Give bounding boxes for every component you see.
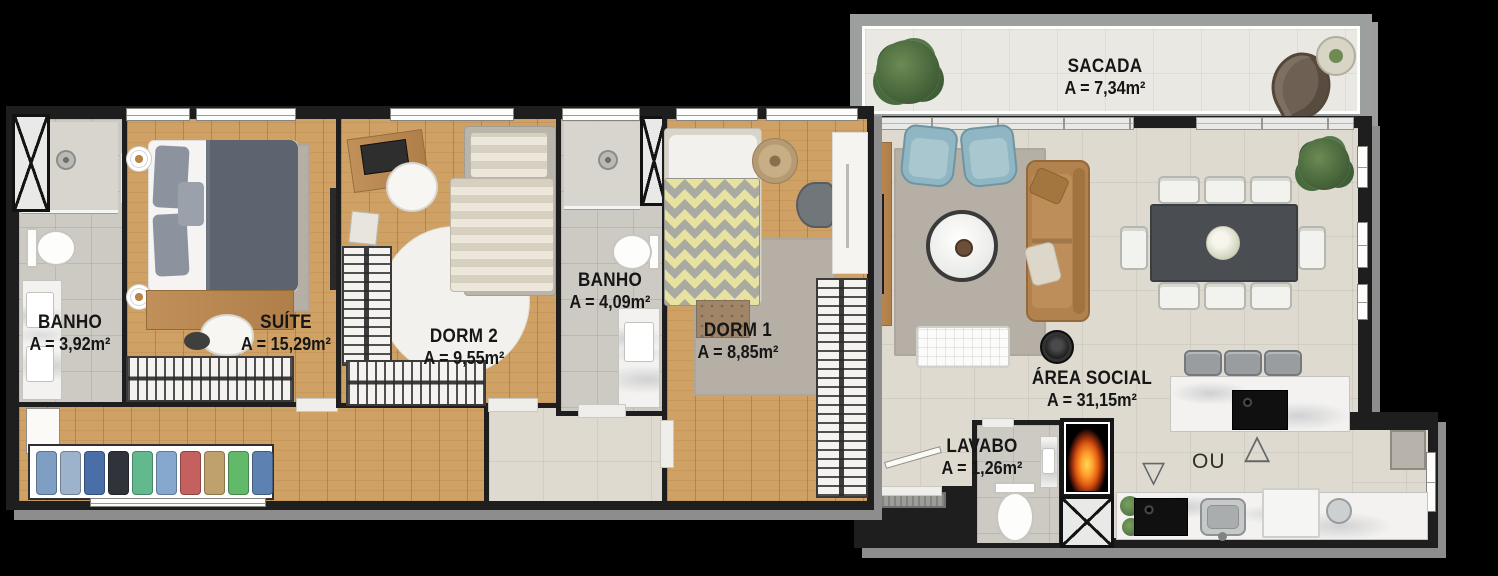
table-centerpiece bbox=[1206, 226, 1240, 260]
room-name: ÁREA SOCIAL bbox=[1020, 368, 1164, 390]
closet-shelf bbox=[28, 444, 274, 500]
folded-clothes bbox=[180, 451, 201, 495]
facade-window bbox=[390, 108, 514, 121]
dining-chair bbox=[1158, 282, 1200, 310]
armchair-left bbox=[899, 123, 959, 188]
shower-glass bbox=[564, 206, 640, 209]
dorm1-pillow bbox=[668, 134, 758, 184]
room-area: A = 8,85m² bbox=[675, 342, 801, 363]
facade-window bbox=[562, 108, 640, 121]
room-area: A = 31,15m² bbox=[1020, 390, 1164, 411]
suite-pillow-small bbox=[178, 182, 204, 226]
balcony-side-table bbox=[1316, 36, 1356, 76]
lavabo-door-opening bbox=[982, 418, 1014, 428]
room-area: A = 3,92m² bbox=[16, 334, 124, 355]
dorm2-duvet bbox=[450, 178, 554, 292]
dining-plant-icon bbox=[1298, 138, 1350, 190]
island-cooktop bbox=[1232, 390, 1288, 430]
room-area: A = 15,29m² bbox=[232, 334, 340, 355]
room-label-dorm2: DORM 2 A = 9,55m² bbox=[403, 326, 525, 368]
entry-door-opening bbox=[878, 486, 942, 496]
folded-clothes bbox=[60, 451, 81, 495]
triangle-up-icon: △ bbox=[1244, 430, 1270, 464]
bar-stool bbox=[1224, 350, 1262, 376]
vent-shaft bbox=[12, 114, 50, 212]
tv-panel bbox=[876, 194, 884, 294]
balcony-plant-icon bbox=[876, 40, 940, 104]
toilet-bowl bbox=[612, 234, 652, 270]
suite-tray bbox=[184, 332, 210, 350]
social-right-window-1 bbox=[1357, 146, 1368, 188]
room-name: BANHO bbox=[16, 312, 124, 334]
kitchen-cabinet bbox=[1390, 430, 1426, 470]
dining-chair bbox=[1158, 176, 1200, 204]
folded-clothes bbox=[228, 451, 249, 495]
room-name: DORM 1 bbox=[675, 320, 801, 342]
facade-window bbox=[676, 108, 758, 121]
room-label-sacada: SACADA A = 7,34m² bbox=[1038, 56, 1173, 98]
lavabo-toilet-bowl bbox=[996, 492, 1034, 542]
floor-plan: SACADA A = 7,34m² OU ▽ △ bbox=[0, 0, 1498, 576]
triangle-down-icon: ▽ bbox=[1142, 458, 1165, 488]
room-name: LAVABO bbox=[915, 436, 1048, 458]
dorm1-door-opening bbox=[660, 420, 674, 468]
dorm2-book bbox=[348, 211, 379, 246]
dorm2-chair bbox=[386, 162, 438, 212]
room-label-banho-social: BANHO A = 4,09m² bbox=[554, 270, 666, 312]
armchair-right bbox=[959, 123, 1019, 188]
room-area: A = 7,34m² bbox=[1038, 78, 1173, 99]
dorm1-wardrobe bbox=[816, 278, 868, 498]
room-name: BANHO bbox=[554, 270, 666, 292]
room-label-dorm1: DORM 1 A = 8,85m² bbox=[675, 320, 801, 362]
dorm2-door-opening bbox=[488, 398, 538, 412]
nightstand-lamp bbox=[126, 146, 152, 172]
bath-basin bbox=[624, 322, 654, 362]
room-area: A = 4,09m² bbox=[554, 292, 666, 313]
shower-head-icon bbox=[598, 150, 618, 170]
toilet-bowl bbox=[36, 230, 76, 266]
dishwasher bbox=[1262, 488, 1320, 538]
robot-vacuum bbox=[1040, 330, 1074, 364]
room-label-suite: SUÍTE A = 15,29m² bbox=[232, 312, 340, 354]
suite-door-opening bbox=[296, 398, 338, 412]
folded-clothes bbox=[84, 451, 105, 495]
dining-chair bbox=[1120, 226, 1148, 270]
social-right-window-2 bbox=[1357, 222, 1368, 268]
sofa-back bbox=[1073, 168, 1085, 314]
folded-clothes bbox=[108, 451, 129, 495]
corridor-window bbox=[90, 498, 266, 507]
room-name: DORM 2 bbox=[403, 326, 525, 348]
ottoman-bench bbox=[916, 326, 1010, 368]
dining-chair bbox=[1250, 282, 1292, 310]
dining-window-band bbox=[1196, 117, 1354, 130]
room-label-banho-suite: BANHO A = 3,92m² bbox=[16, 312, 124, 354]
duct-shaft bbox=[1060, 496, 1114, 548]
banho-social-door-opening bbox=[578, 404, 626, 418]
kitchen-sink bbox=[1200, 498, 1246, 536]
facade-window bbox=[766, 108, 858, 121]
suite-blanket bbox=[206, 140, 298, 292]
bar-stool bbox=[1264, 350, 1302, 376]
room-label-area-social: ÁREA SOCIAL A = 31,15m² bbox=[1020, 368, 1164, 410]
dining-chair bbox=[1204, 282, 1246, 310]
facade-window bbox=[196, 108, 296, 121]
facade-window bbox=[126, 108, 190, 121]
dining-chair bbox=[1204, 176, 1246, 204]
desk-lamp-arm bbox=[846, 164, 849, 248]
room-area: A = 9,55m² bbox=[403, 348, 525, 369]
dorm1-pouf bbox=[752, 138, 798, 184]
shower-head-icon bbox=[56, 150, 76, 170]
bar-stool bbox=[1184, 350, 1222, 376]
dorm2-wardrobe-side bbox=[342, 246, 392, 366]
dorm1-desk bbox=[832, 132, 868, 274]
dorm1-duvet bbox=[664, 178, 760, 306]
coffee-table bbox=[926, 210, 998, 282]
folded-clothes bbox=[36, 451, 57, 495]
room-name: SUÍTE bbox=[232, 312, 340, 334]
folded-clothes bbox=[156, 451, 177, 495]
dining-chair bbox=[1298, 226, 1326, 270]
folded-clothes bbox=[204, 451, 225, 495]
room-label-lavabo: LAVABO A = 1,26m² bbox=[915, 436, 1048, 478]
kitchen-cooktop bbox=[1134, 498, 1188, 536]
folded-clothes bbox=[252, 451, 273, 495]
folded-clothes bbox=[132, 451, 153, 495]
suite-wardrobe bbox=[126, 356, 294, 402]
room-name: SACADA bbox=[1038, 56, 1173, 78]
dorm1-chair bbox=[796, 182, 834, 228]
barbecue-shaft bbox=[1060, 418, 1114, 498]
social-right-window-3 bbox=[1357, 284, 1368, 320]
dining-chair bbox=[1250, 176, 1292, 204]
dorm2-pillow bbox=[470, 132, 548, 178]
kitchen-alternative-label: OU bbox=[1192, 450, 1226, 474]
kitchen-jar bbox=[1326, 498, 1352, 524]
room-area: A = 1,26m² bbox=[915, 458, 1048, 479]
